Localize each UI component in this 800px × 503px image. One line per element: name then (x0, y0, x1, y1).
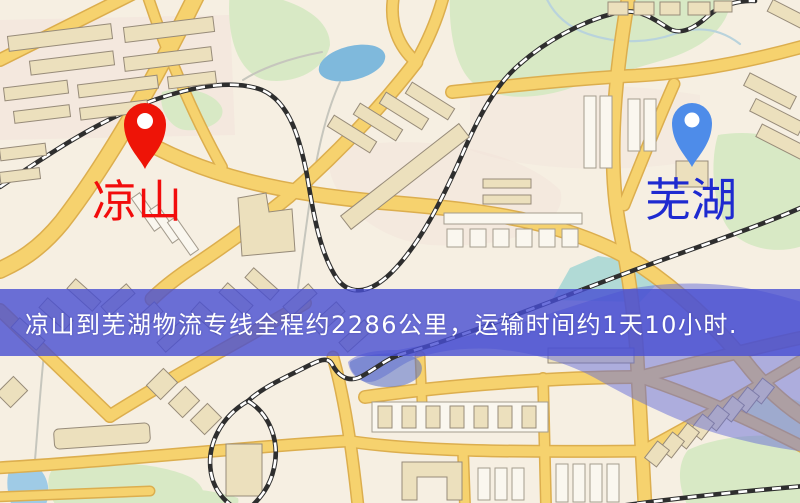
destination-label: 芜湖 (645, 177, 737, 223)
origin-label: 凉山 (92, 179, 182, 224)
route-info-banner: 凉山到芜湖物流专线全程约2286公里，运输时间约1天10小时. (0, 289, 800, 356)
route-info-text: 凉山到芜湖物流专线全程约2286公里，运输时间约1天10小时. (25, 305, 738, 340)
destination-pin-icon[interactable] (671, 101, 713, 168)
map-background (0, 0, 800, 503)
origin-pin-icon[interactable] (123, 101, 167, 170)
map-view: 凉山到芜湖物流专线全程约2286公里，运输时间约1天10小时. 凉山 芜湖 (0, 0, 800, 503)
